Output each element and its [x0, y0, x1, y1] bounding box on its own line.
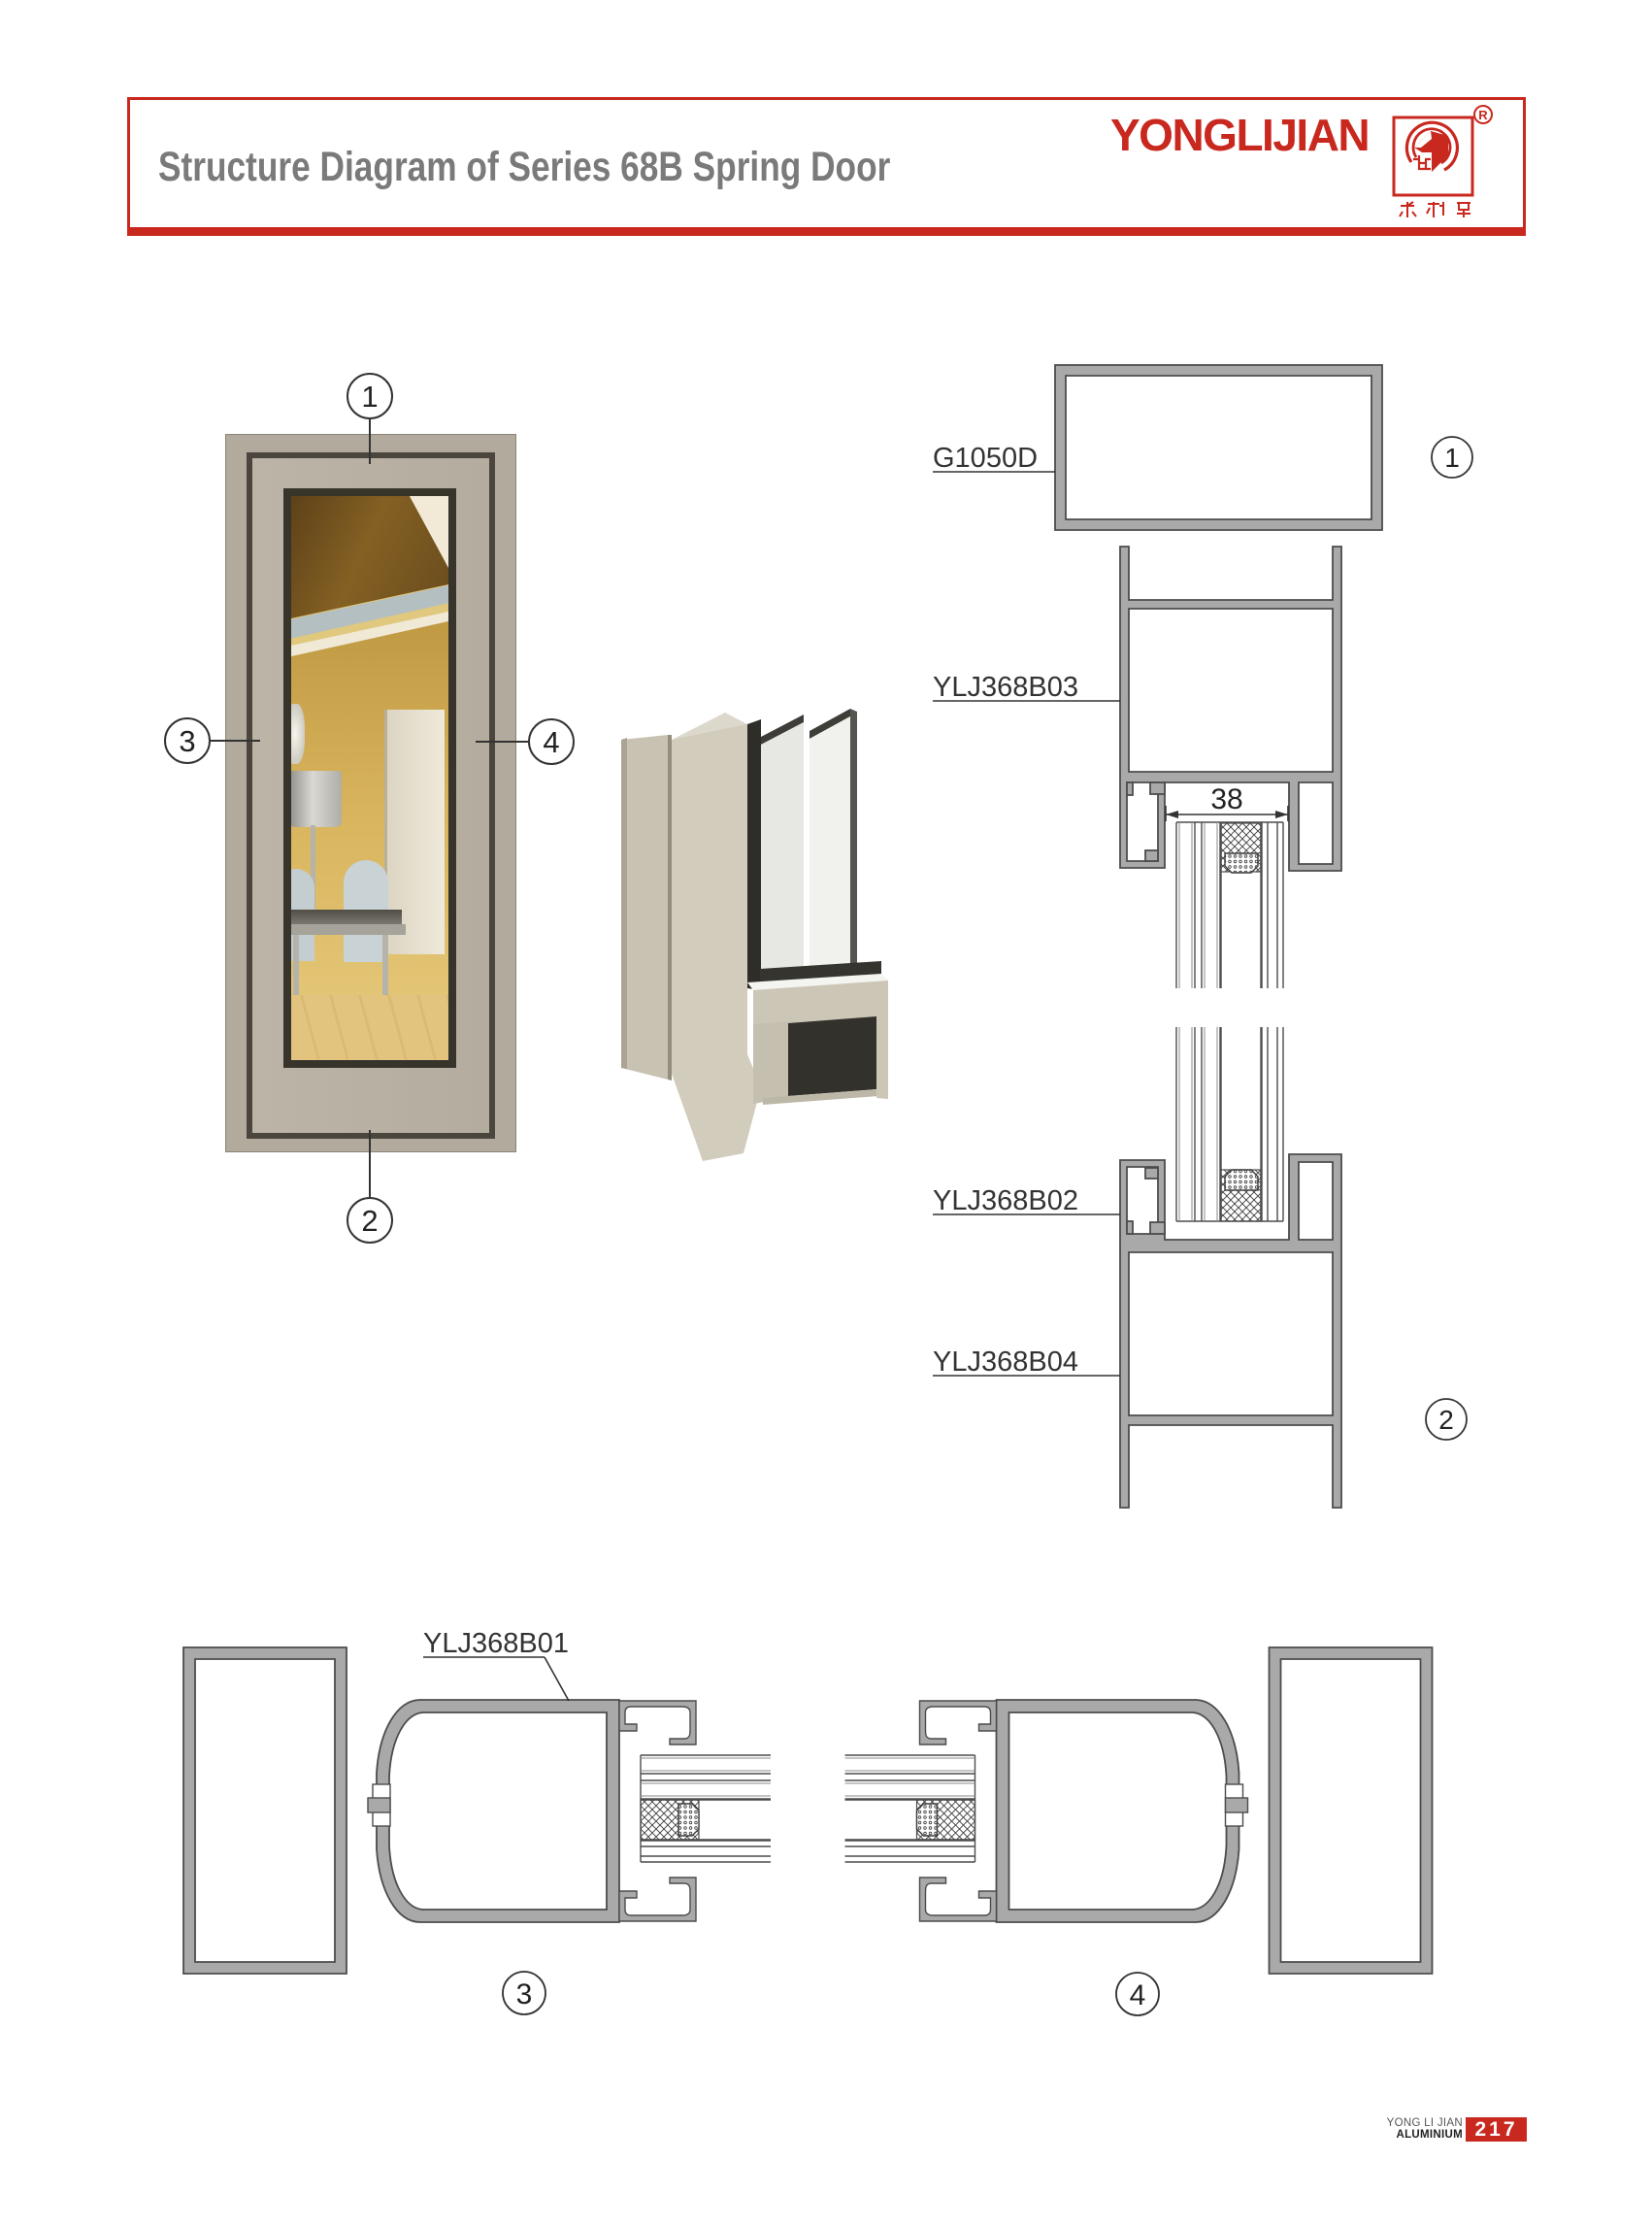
svg-text:YLJ368B02: YLJ368B02 [933, 1185, 1078, 1216]
svg-text:YLJ368B03: YLJ368B03 [933, 672, 1078, 703]
svg-text:2: 2 [361, 1204, 378, 1238]
svg-text:YLJ368B04: YLJ368B04 [933, 1346, 1078, 1378]
svg-text:R: R [1478, 108, 1488, 122]
svg-text:1: 1 [361, 380, 378, 414]
svg-text:3: 3 [179, 724, 195, 758]
svg-text:3: 3 [516, 1978, 533, 2011]
svg-text:38: 38 [1210, 783, 1242, 815]
svg-text:G1050D: G1050D [933, 443, 1038, 474]
svg-text:1: 1 [1444, 443, 1460, 473]
svg-text:2: 2 [1438, 1405, 1454, 1435]
svg-text:YLJ368B01: YLJ368B01 [423, 1628, 569, 1659]
svg-text:4: 4 [1130, 1979, 1146, 2011]
svg-text:4: 4 [543, 725, 559, 759]
